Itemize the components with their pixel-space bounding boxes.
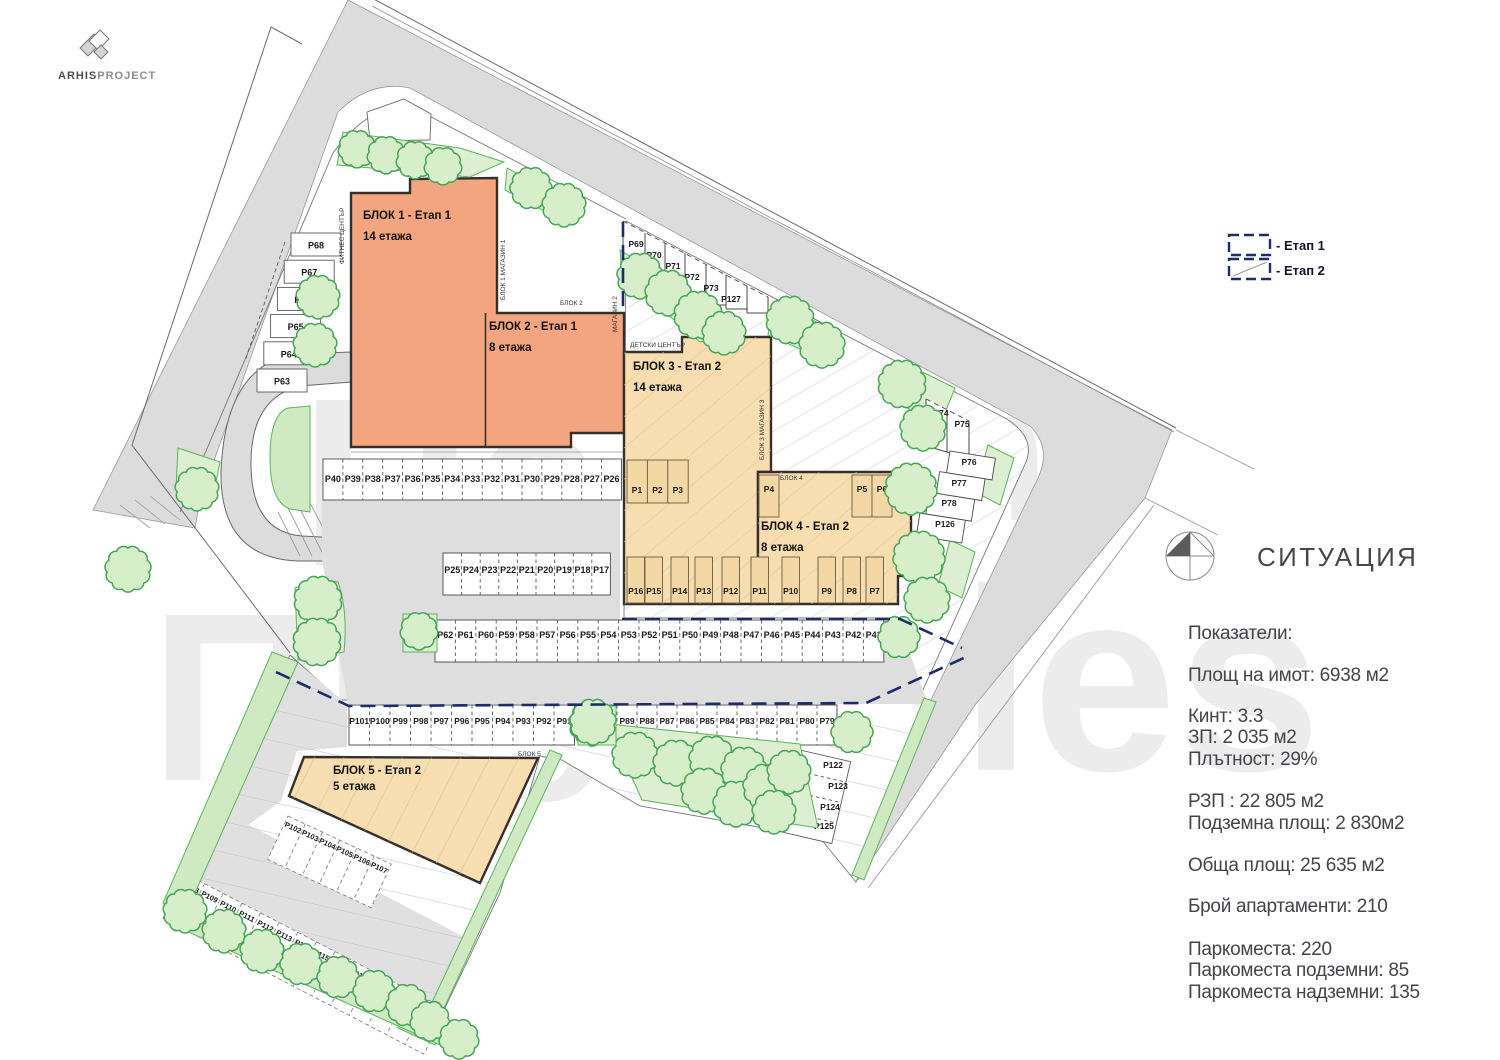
svg-text:8 етажа: 8 етажа: [761, 542, 804, 554]
svg-text:БЛОК 3 МАГАЗИН 3: БЛОК 3 МАГАЗИН 3: [759, 399, 766, 460]
svg-text:P51: P51: [662, 630, 678, 640]
svg-text:P30: P30: [524, 474, 540, 484]
svg-text:P4: P4: [764, 484, 775, 494]
svg-text:P50: P50: [682, 630, 698, 640]
svg-text:P57: P57: [539, 630, 555, 640]
svg-text:P3: P3: [673, 485, 684, 495]
svg-text:P97: P97: [434, 716, 449, 726]
svg-text:- Етап 1: - Етап 1: [1276, 238, 1325, 253]
svg-text:P25: P25: [444, 565, 460, 575]
svg-text:P95: P95: [475, 716, 490, 726]
svg-text:Показатели:: Показатели:: [1188, 623, 1292, 644]
svg-text:P17: P17: [593, 565, 609, 575]
svg-text:P2: P2: [652, 485, 663, 495]
svg-text:P16: P16: [628, 586, 643, 596]
svg-text:P7: P7: [869, 586, 880, 596]
svg-text:P98: P98: [413, 716, 428, 726]
svg-text:P127: P127: [721, 294, 741, 304]
svg-text:P40: P40: [325, 474, 341, 484]
svg-text:P21: P21: [519, 565, 535, 575]
svg-text:P1: P1: [632, 485, 643, 495]
svg-text:P5: P5: [857, 484, 868, 494]
svg-text:P76: P76: [961, 457, 976, 467]
svg-text:БЛОК 3 - Етап 2: БЛОК 3 - Етап 2: [633, 361, 721, 373]
svg-text:P77: P77: [951, 478, 966, 488]
svg-text:P28: P28: [564, 474, 580, 484]
svg-text:P88: P88: [639, 716, 654, 726]
svg-text:P78: P78: [941, 498, 956, 508]
svg-text:ДЕТСКИ ЦЕНТЪР: ДЕТСКИ ЦЕНТЪР: [630, 342, 685, 349]
svg-text:5 етажа: 5 етажа: [333, 781, 376, 793]
svg-text:БЛОК 1 МАГАЗИН 1: БЛОК 1 МАГАЗИН 1: [500, 239, 507, 300]
svg-text:P31: P31: [504, 474, 520, 484]
svg-text:Паркоместа надземни: 135: Паркоместа надземни: 135: [1188, 982, 1420, 1003]
svg-text:P33: P33: [464, 474, 480, 484]
svg-text:P61: P61: [458, 630, 474, 640]
svg-text:P36: P36: [405, 474, 421, 484]
svg-text:P126: P126: [935, 519, 955, 529]
svg-text:P94: P94: [495, 716, 510, 726]
svg-text:14 етажа: 14 етажа: [633, 382, 683, 394]
svg-text:P29: P29: [544, 474, 560, 484]
svg-text:БЛОК 2 - Етап 1: БЛОК 2 - Етап 1: [489, 321, 578, 333]
svg-text:Площ на имот: 6938 м2: Площ на имот: 6938 м2: [1188, 665, 1389, 686]
svg-text:P55: P55: [580, 630, 596, 640]
svg-text:P23: P23: [481, 565, 497, 575]
svg-text:БЛОК 4: БЛОК 4: [780, 475, 803, 482]
svg-text:P35: P35: [424, 474, 440, 484]
svg-text:Плътност: 29%: Плътност: 29%: [1188, 749, 1318, 770]
svg-text:P9: P9: [821, 586, 832, 596]
svg-text:СИТУАЦИЯ: СИТУАЦИЯ: [1257, 542, 1418, 572]
svg-text:P79: P79: [819, 716, 834, 726]
svg-text:P60: P60: [478, 630, 494, 640]
svg-text:P54: P54: [600, 630, 616, 640]
svg-text:P26: P26: [603, 474, 619, 484]
svg-text:Паркоместа: 220: Паркоместа: 220: [1188, 939, 1332, 960]
svg-text:P15: P15: [646, 586, 661, 596]
svg-text:P75: P75: [954, 419, 969, 429]
svg-text:P92: P92: [536, 716, 551, 726]
svg-text:14 етажа: 14 етажа: [363, 231, 413, 243]
svg-text:P100: P100: [370, 716, 390, 726]
svg-text:БЛОК 4 - Етап 2: БЛОК 4 - Етап 2: [761, 521, 849, 533]
svg-text:P89: P89: [619, 716, 634, 726]
svg-text:P19: P19: [556, 565, 572, 575]
svg-text:P53: P53: [621, 630, 637, 640]
svg-text:P32: P32: [484, 474, 500, 484]
svg-text:- Етап 2: - Етап 2: [1276, 263, 1325, 278]
svg-text:P58: P58: [519, 630, 535, 640]
svg-text:P101: P101: [349, 716, 369, 726]
svg-text:P20: P20: [537, 565, 553, 575]
svg-text:P38: P38: [365, 474, 381, 484]
svg-text:P81: P81: [779, 716, 794, 726]
svg-text:P44: P44: [804, 630, 820, 640]
svg-text:P49: P49: [702, 630, 718, 640]
svg-text:P85: P85: [699, 716, 714, 726]
svg-text:Обща площ: 25 635 м2: Обща площ: 25 635 м2: [1188, 855, 1385, 876]
svg-text:P63: P63: [274, 377, 290, 387]
svg-text:Брой апартаменти: 210: Брой апартаменти: 210: [1188, 896, 1388, 917]
svg-text:8 етажа: 8 етажа: [489, 342, 532, 354]
svg-text:МАГАЗИН 2: МАГАЗИН 2: [612, 296, 619, 332]
svg-text:P124: P124: [820, 802, 840, 812]
svg-text:P86: P86: [679, 716, 694, 726]
svg-text:Кинт: 3.3: Кинт: 3.3: [1188, 706, 1263, 727]
svg-text:P8: P8: [846, 586, 857, 596]
svg-text:P43: P43: [825, 630, 841, 640]
svg-text:P84: P84: [719, 716, 734, 726]
svg-text:P14: P14: [672, 586, 687, 596]
svg-text:P83: P83: [739, 716, 754, 726]
svg-text:P122: P122: [823, 760, 843, 770]
svg-text:P82: P82: [759, 716, 774, 726]
svg-text:P71: P71: [665, 261, 680, 271]
svg-text:P45: P45: [784, 630, 800, 640]
svg-text:БЛОК 2: БЛОК 2: [560, 300, 583, 307]
svg-text:P69: P69: [628, 239, 643, 249]
svg-text:P13: P13: [696, 586, 711, 596]
svg-text:P24: P24: [463, 565, 479, 575]
svg-text:P96: P96: [454, 716, 469, 726]
svg-text:P12: P12: [723, 586, 738, 596]
svg-text:БЛОК 1 - Етап 1: БЛОК 1 - Етап 1: [363, 210, 452, 222]
svg-text:P59: P59: [498, 630, 514, 640]
svg-text:P42: P42: [845, 630, 861, 640]
svg-text:РЗП : 22 805 м2: РЗП : 22 805 м2: [1188, 791, 1324, 812]
svg-text:P37: P37: [385, 474, 401, 484]
svg-text:P52: P52: [641, 630, 657, 640]
svg-text:P62: P62: [437, 630, 453, 640]
svg-text:P80: P80: [799, 716, 814, 726]
svg-text:P123: P123: [828, 781, 848, 791]
svg-text:P47: P47: [743, 630, 759, 640]
svg-text:P11: P11: [752, 586, 767, 596]
svg-text:P99: P99: [393, 716, 408, 726]
svg-text:БЛОК 5 - Етап 2: БЛОК 5 - Етап 2: [333, 765, 421, 777]
svg-text:БЛОК 5: БЛОК 5: [518, 751, 541, 758]
svg-text:P87: P87: [659, 716, 674, 726]
svg-text:P27: P27: [584, 474, 600, 484]
svg-text:P18: P18: [574, 565, 590, 575]
svg-text:ЗП: 2 035 м2: ЗП: 2 035 м2: [1188, 727, 1297, 748]
svg-text:ARHISPROJECT: ARHISPROJECT: [58, 70, 156, 82]
svg-text:P46: P46: [764, 630, 780, 640]
svg-text:P48: P48: [723, 630, 739, 640]
svg-text:P22: P22: [500, 565, 516, 575]
svg-text:Паркоместа подземни: 85: Паркоместа подземни: 85: [1188, 960, 1409, 981]
svg-text:P39: P39: [345, 474, 361, 484]
svg-text:Подземна площ: 2 830м2: Подземна площ: 2 830м2: [1188, 813, 1404, 834]
svg-text:P56: P56: [560, 630, 576, 640]
svg-text:P34: P34: [444, 474, 460, 484]
svg-text:P93: P93: [516, 716, 531, 726]
svg-text:P10: P10: [783, 586, 798, 596]
svg-text:P68: P68: [308, 241, 324, 251]
svg-text:ФИТНЕС ЦЕНТЪР: ФИТНЕС ЦЕНТЪР: [339, 208, 346, 264]
